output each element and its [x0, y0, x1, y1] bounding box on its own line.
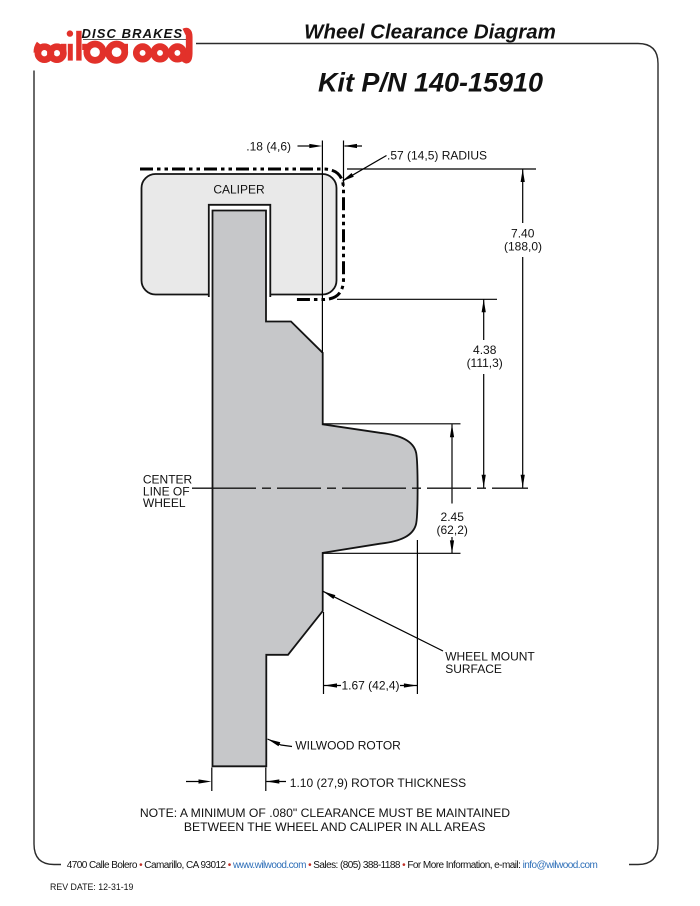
svg-text:4.38: 4.38 — [473, 343, 497, 357]
svg-text:(111,3): (111,3) — [467, 356, 503, 370]
svg-text:Wheel Clearance Diagram: Wheel Clearance Diagram — [304, 21, 556, 44]
svg-text:1.67 (42,4): 1.67 (42,4) — [341, 679, 399, 693]
svg-text:7.40: 7.40 — [511, 227, 535, 241]
svg-text:(188,0): (188,0) — [504, 240, 542, 254]
svg-text:WHEEL: WHEEL — [143, 496, 186, 510]
svg-text:4700 Calle Bolero • Camarillo,: 4700 Calle Bolero • Camarillo, CA 93012 … — [67, 860, 598, 871]
svg-text:REV DATE: 12-31-19: REV DATE: 12-31-19 — [50, 882, 134, 892]
svg-text:BETWEEN THE WHEEL AND CALIPER: BETWEEN THE WHEEL AND CALIPER IN ALL ARE… — [184, 820, 486, 834]
svg-text:2.45: 2.45 — [441, 510, 465, 524]
svg-text:NOTE: A MINIMUM OF .080" CLEAR: NOTE: A MINIMUM OF .080" CLEARANCE MUST … — [140, 806, 510, 820]
svg-text:DISC BRAKES: DISC BRAKES — [82, 26, 184, 41]
svg-text:1.10 (27,9) ROTOR THICKNESS: 1.10 (27,9) ROTOR THICKNESS — [290, 776, 466, 790]
svg-text:Kit P/N 140-15910: Kit P/N 140-15910 — [318, 68, 543, 98]
svg-text:CALIPER: CALIPER — [213, 183, 265, 197]
svg-text:WILWOOD ROTOR: WILWOOD ROTOR — [295, 739, 401, 753]
svg-text:.57 (14,5) RADIUS: .57 (14,5) RADIUS — [387, 149, 487, 163]
svg-text:.18 (4,6): .18 (4,6) — [246, 139, 291, 153]
svg-text:SURFACE: SURFACE — [445, 662, 502, 676]
svg-text:(62,2): (62,2) — [437, 523, 468, 537]
